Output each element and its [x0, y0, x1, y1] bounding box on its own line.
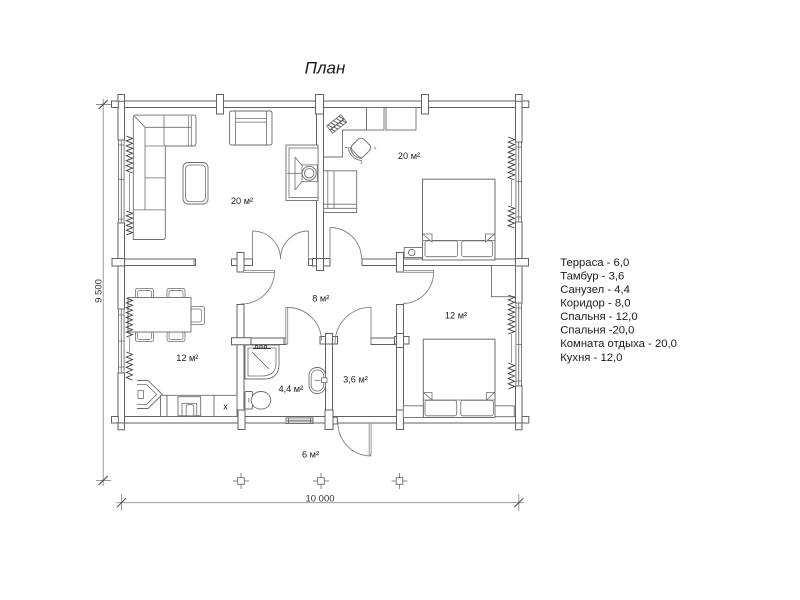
svg-text:Спальня -20,0: Спальня -20,0: [560, 325, 634, 337]
svg-text:Комната отдыха - 20,0: Комната отдыха - 20,0: [560, 338, 677, 350]
svg-text:Терраса - 6,0: Терраса - 6,0: [560, 257, 629, 269]
svg-text:9 500: 9 500: [94, 279, 105, 303]
svg-text:3,6 м²: 3,6 м²: [343, 375, 368, 385]
svg-text:Спальня - 12,0: Спальня - 12,0: [560, 311, 637, 323]
svg-text:Санузел - 4,4: Санузел - 4,4: [560, 284, 630, 296]
svg-text:Коридор - 8,0: Коридор - 8,0: [560, 298, 630, 310]
svg-text:20 м²: 20 м²: [398, 151, 420, 161]
svg-text:Тамбур - 3,6: Тамбур - 3,6: [560, 270, 624, 282]
svg-text:4,4 м²: 4,4 м²: [278, 384, 303, 394]
svg-text:6 м²: 6 м²: [302, 450, 319, 460]
svg-text:12 м²: 12 м²: [176, 353, 198, 363]
svg-text:12 м²: 12 м²: [445, 310, 467, 320]
svg-text:10 000: 10 000: [305, 493, 334, 504]
svg-text:20 м²: 20 м²: [231, 196, 253, 206]
svg-text:Кухня - 12,0: Кухня - 12,0: [560, 352, 622, 364]
svg-text:План: План: [305, 59, 346, 78]
svg-text:x: x: [223, 401, 228, 411]
svg-text:8 м²: 8 м²: [312, 293, 329, 303]
